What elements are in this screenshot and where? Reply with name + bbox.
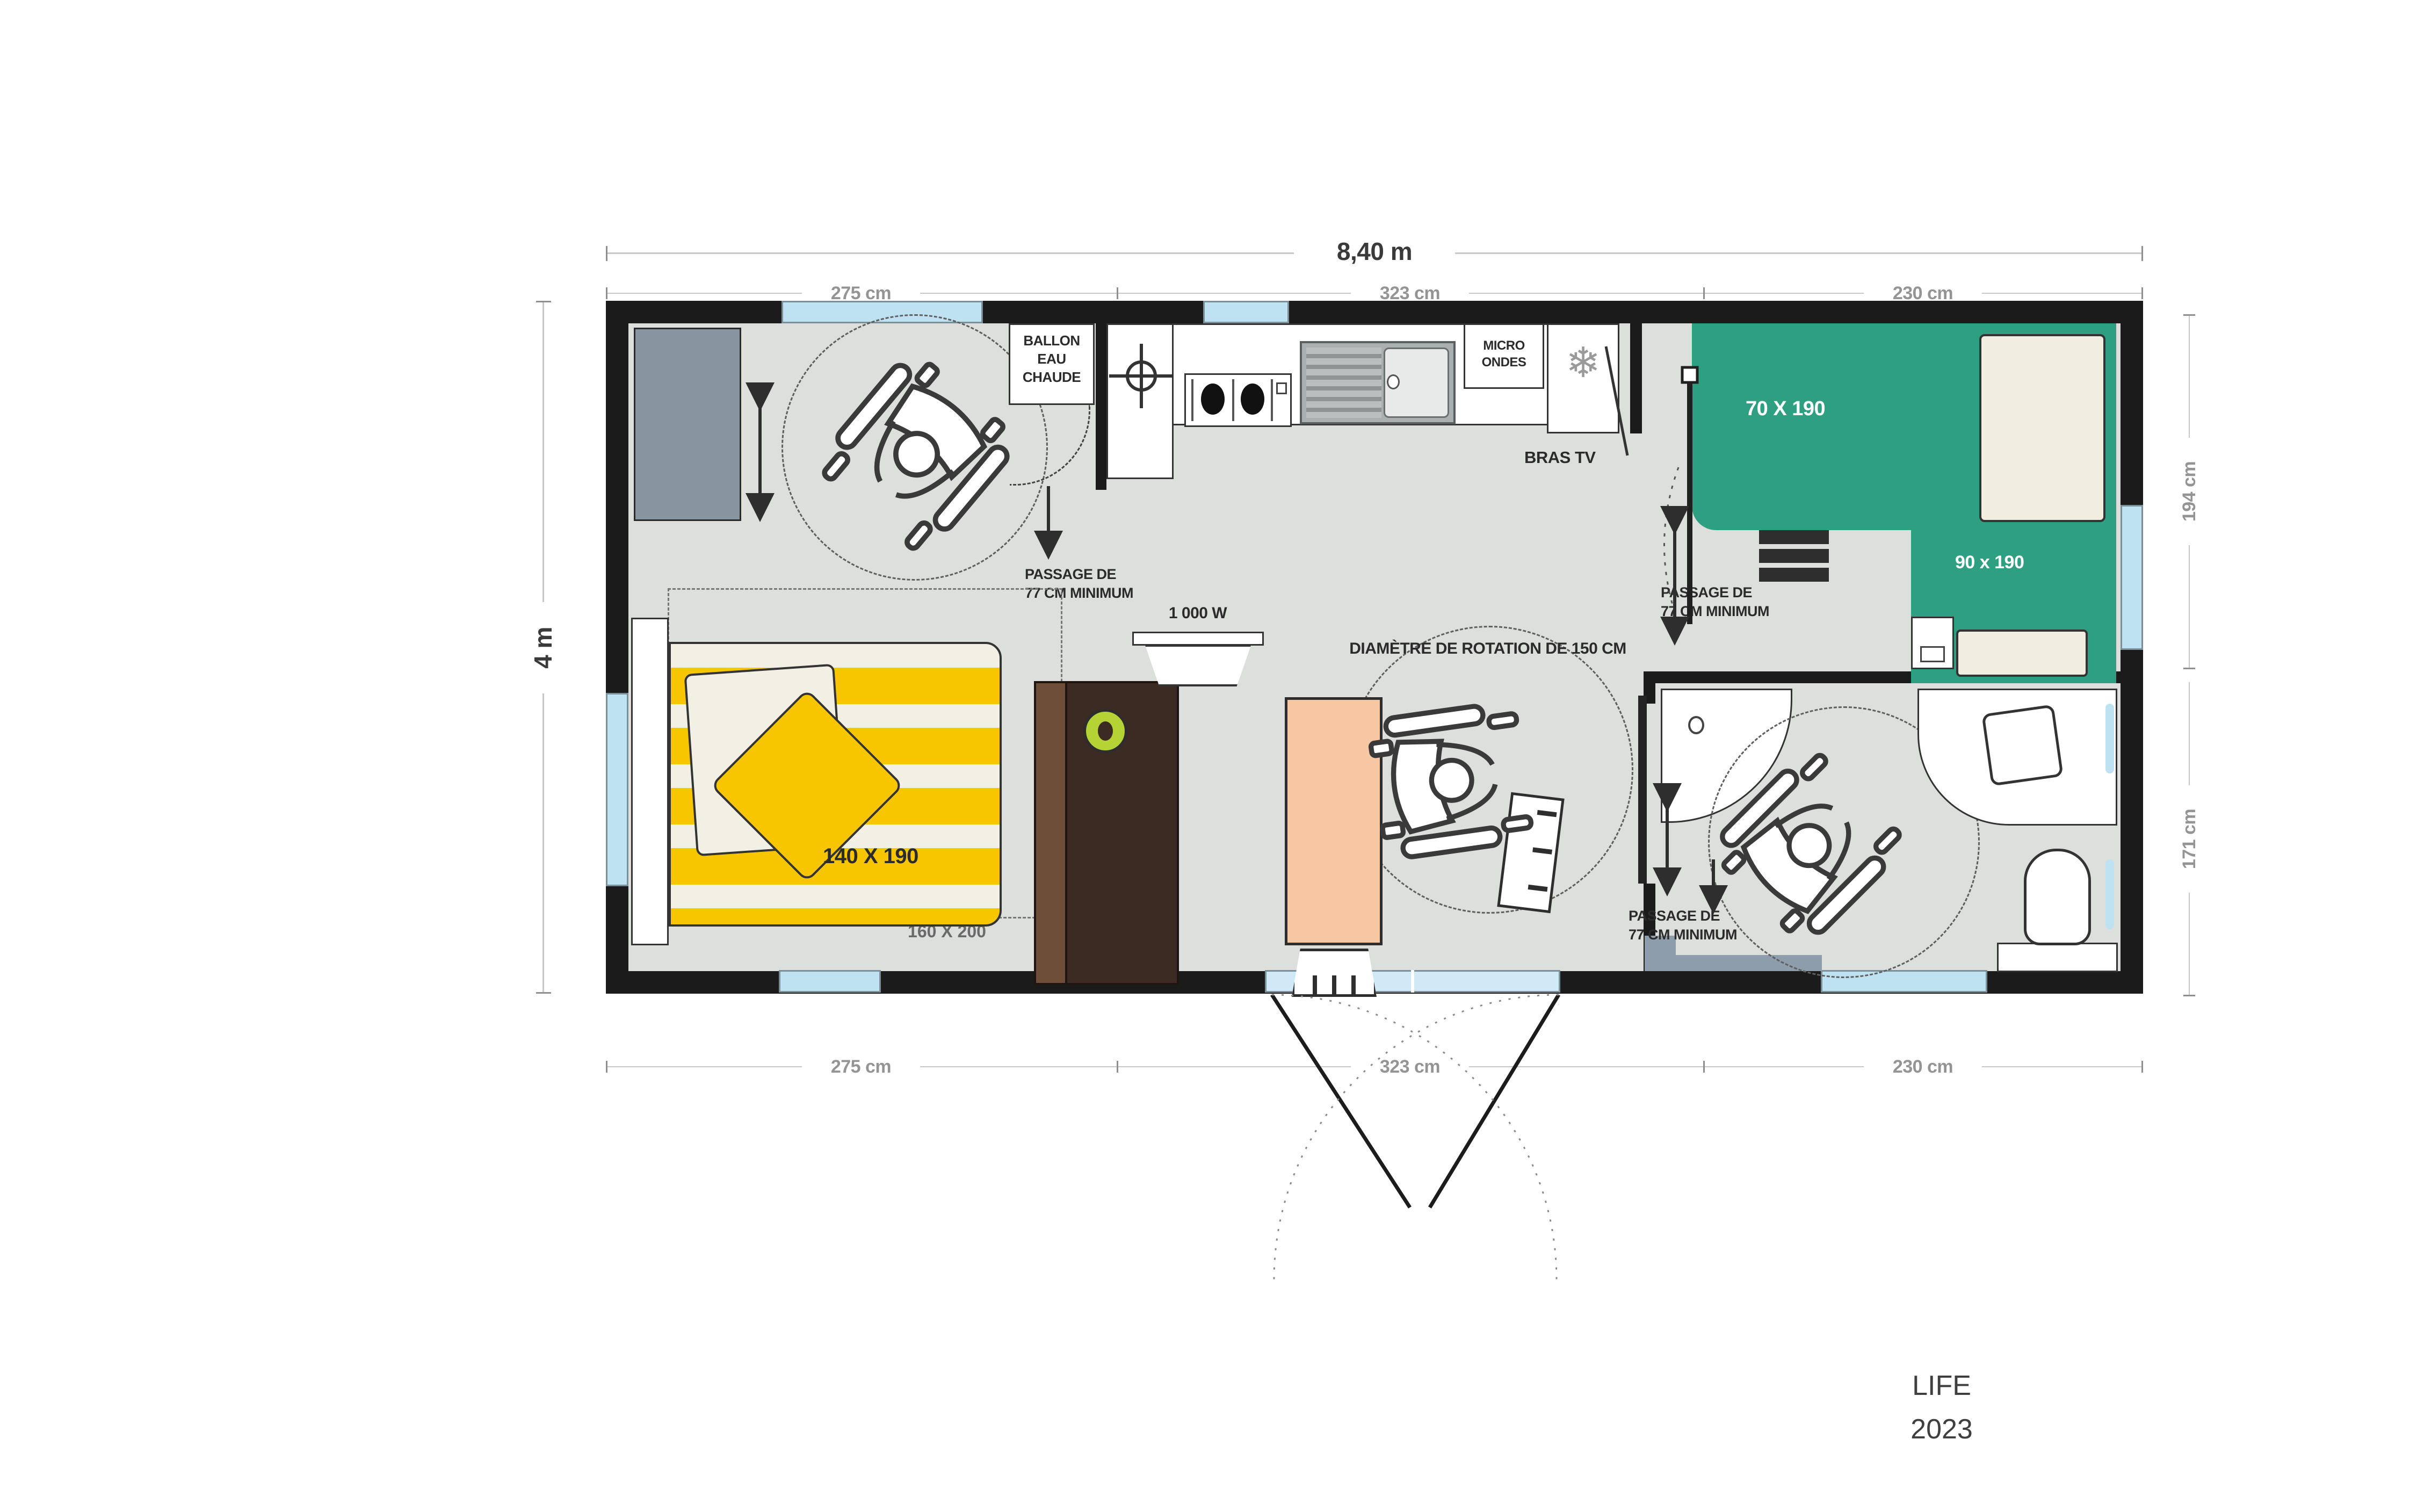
mattress-70 — [1979, 334, 2105, 522]
bathroom-sliding-door — [1638, 696, 1647, 884]
dim-total-height: 4 m — [529, 602, 557, 693]
entry-door-swing-arc — [1272, 995, 1557, 1279]
dim-tick — [1703, 1061, 1705, 1073]
stove-knob — [1276, 382, 1287, 394]
chair-slat — [1313, 975, 1317, 997]
toilet-base — [1997, 943, 2118, 972]
heater-flange — [1132, 632, 1264, 646]
rotation-diameter-label: DIAMÈTRE DE ROTATION DE 150 CM — [1305, 638, 1670, 659]
towel-rail — [2105, 704, 2114, 773]
dim-right-seg-2: 171 cm — [2177, 785, 2201, 893]
passage-3-l2: 77 CM MINIMUM — [1629, 925, 1779, 944]
dim-tick — [536, 301, 551, 302]
dim-tick — [606, 287, 607, 299]
floorplan-page: 8,40 m 275 cm 323 cm 230 cm 275 cm 323 c… — [0, 0, 2417, 1512]
burner-icon — [1201, 384, 1225, 415]
bed-steps — [1759, 530, 1829, 595]
snowflake-icon: ❄ — [1552, 338, 1614, 387]
stove-grill-bar — [1191, 379, 1193, 421]
dim-tick — [1117, 287, 1118, 299]
tv-unit-slate — [634, 328, 741, 521]
dim-tick — [2141, 287, 2143, 299]
dining-chair-bottom — [1292, 949, 1377, 997]
water-heater-label-l2: EAU — [1009, 350, 1095, 368]
burner-icon — [1241, 384, 1264, 415]
step-tread — [1759, 568, 1829, 582]
passage-2-l2: 77 CM MINIMUM — [1661, 602, 1811, 621]
double-bed-label: 140 X 190 — [823, 842, 918, 870]
partition-kitchen-wall — [1096, 323, 1106, 490]
passage-1-l1: PASSAGE DE — [1025, 565, 1175, 584]
stove-grill-bar — [1232, 379, 1234, 421]
model-name-block: LIFE 2023 — [1861, 1364, 2022, 1451]
passage-3-l1: PASSAGE DE — [1629, 907, 1779, 925]
entry-door-leaf — [1430, 995, 1559, 1207]
faucet-icon — [1387, 374, 1400, 389]
dim-tick — [2183, 995, 2195, 996]
tv-arm-label: BRAS TV — [1524, 447, 1626, 468]
dim-total-width: 8,40 m — [1294, 237, 1455, 265]
dim-tick — [1117, 1061, 1118, 1073]
stove-grill-bar — [1271, 379, 1273, 421]
model-name: LIFE — [1861, 1364, 2022, 1408]
kitchen-corner-unit — [1106, 323, 1174, 479]
dim-bottom-seg-2: 323 cm — [1351, 1055, 1469, 1079]
cabinet-left-panel — [1036, 683, 1067, 983]
towel-rail — [2105, 859, 2114, 929]
dim-tick — [2183, 314, 2195, 316]
cabinet-knob-inner — [1098, 721, 1113, 741]
window-top-kitchen — [1203, 301, 1289, 323]
dim-bottom-seg-3: 230 cm — [1864, 1055, 1982, 1079]
side-cabinet — [1911, 617, 1954, 669]
heater-power-label: 1 000 W — [1139, 603, 1257, 624]
mattress-90 — [1956, 630, 2088, 677]
wheelchair-icon — [1362, 694, 1545, 866]
single-bed-90-label: 90 x 190 — [1955, 552, 2024, 573]
window-bottom-left — [779, 970, 881, 993]
water-heater-label-l1: BALLON — [1009, 332, 1095, 350]
dim-tick — [1703, 287, 1705, 299]
entry-door-mullion — [1411, 970, 1414, 993]
dim-tick — [2183, 668, 2195, 669]
dim-tick — [2141, 246, 2143, 261]
shower-drain-icon — [1688, 716, 1704, 734]
toilet-bowl — [2024, 849, 2091, 945]
window-right — [2121, 505, 2143, 650]
partition-bedroom2-wall — [1630, 323, 1642, 433]
window-left — [606, 693, 628, 886]
dim-bottom-seg-1: 275 cm — [802, 1055, 920, 1079]
passage-label-3: PASSAGE DE 77 CM MINIMUM — [1629, 907, 1779, 944]
dim-tick — [606, 1061, 607, 1073]
step-tread — [1759, 530, 1829, 544]
microwave-label-l1: MICRO — [1464, 337, 1544, 354]
single-bed-70-label: 70 X 190 — [1746, 397, 1825, 421]
dim-tick — [536, 992, 551, 994]
microwave-label: MICRO ONDES — [1464, 337, 1544, 371]
tall-cabinet-brown — [1034, 681, 1179, 985]
dim-tick — [2141, 1061, 2143, 1073]
water-heater-label-l3: CHAUDE — [1009, 368, 1095, 387]
chair-slat — [1528, 885, 1548, 892]
dim-right-seg-1: 194 cm — [2177, 438, 2201, 545]
cabinet-knob-lime — [1083, 709, 1127, 753]
stove — [1184, 373, 1292, 427]
chair-slat — [1351, 975, 1356, 997]
step-tread — [1759, 549, 1829, 563]
microwave-label-l2: ONDES — [1464, 354, 1544, 371]
model-year: 2023 — [1861, 1408, 2022, 1451]
sink-drainboard — [1306, 348, 1381, 418]
chair-slat — [1532, 847, 1552, 854]
headboard — [631, 618, 669, 945]
chair-slat — [1332, 975, 1336, 997]
dim-tick — [606, 246, 607, 261]
water-heater-label: BALLON EAU CHAUDE — [1009, 332, 1095, 386]
kitchen-sink — [1300, 341, 1456, 424]
side-cabinet-drawer — [1920, 646, 1945, 662]
vanity-sink — [1981, 704, 2063, 786]
entry-door-leaf — [1272, 995, 1410, 1207]
entry-door-swing-arc — [1274, 995, 1559, 1279]
